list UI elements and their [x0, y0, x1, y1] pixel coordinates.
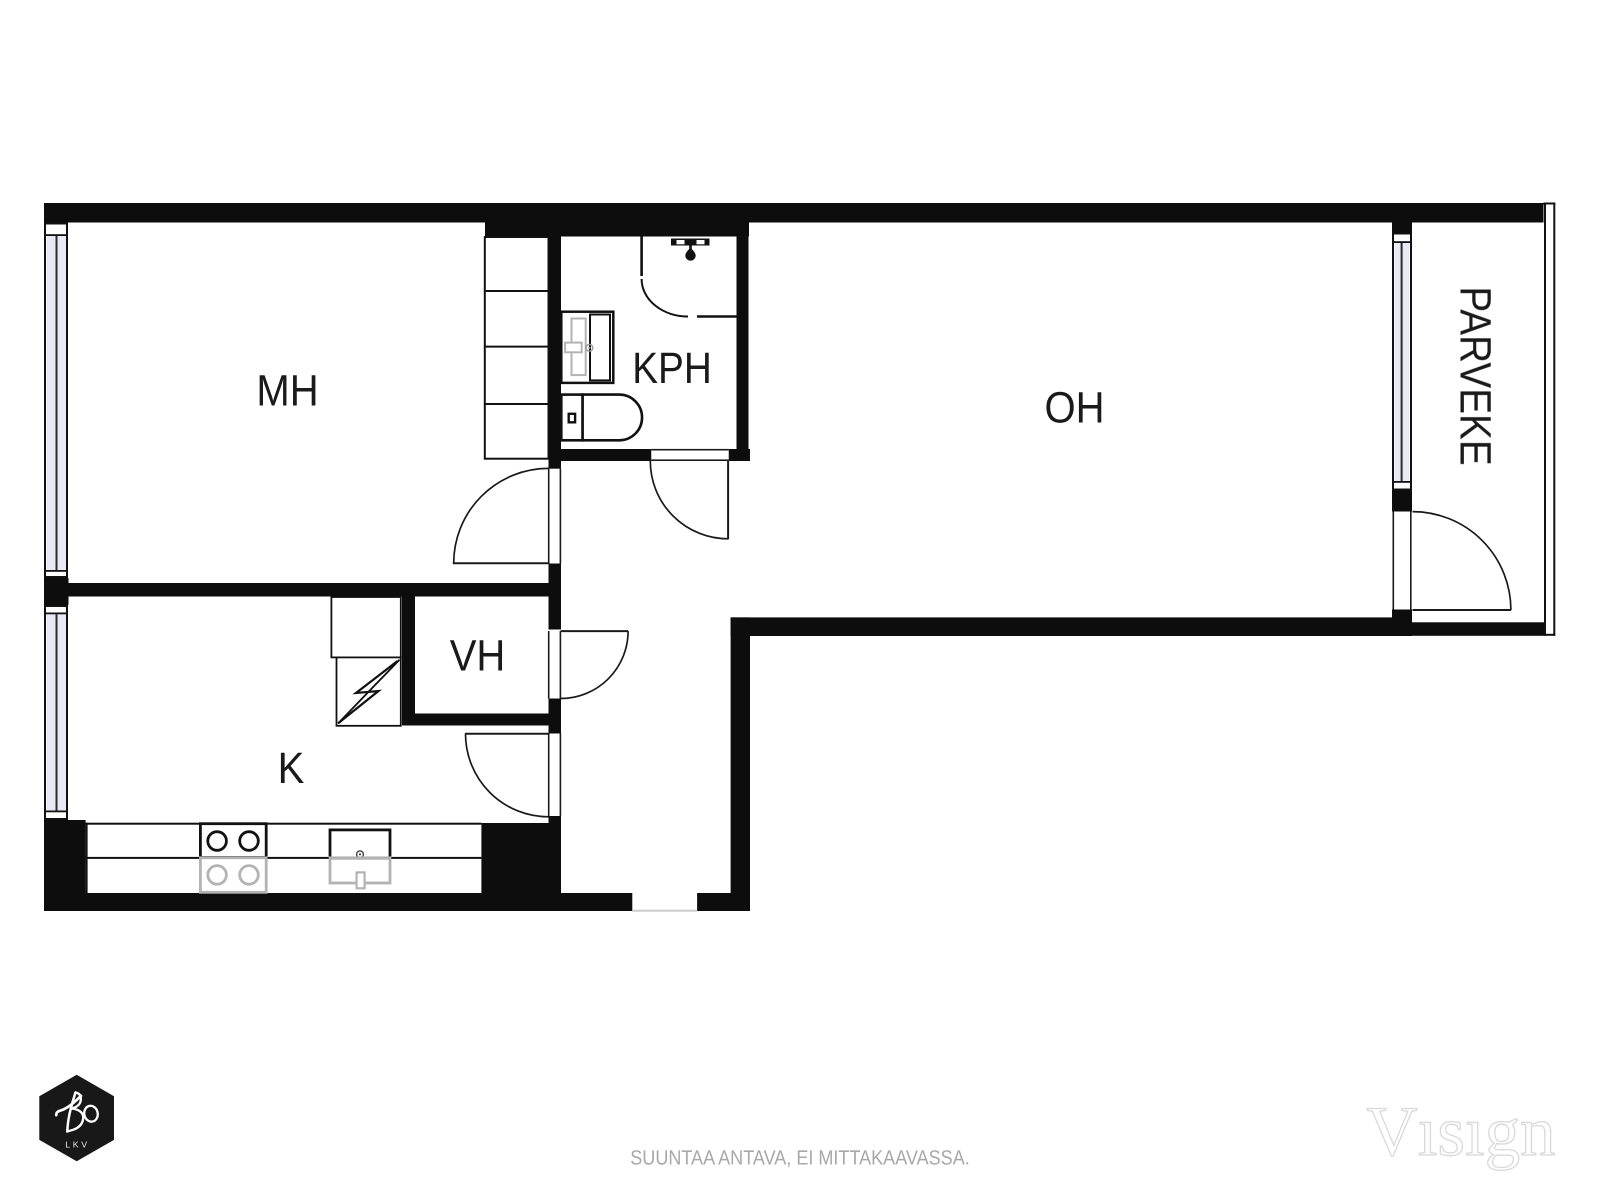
svg-text:SUUNTAA ANTAVA, EI MITTAKAAVAS: SUUNTAA ANTAVA, EI MITTAKAAVASSA. — [630, 1147, 970, 1170]
svg-text:MH: MH — [256, 366, 318, 415]
svg-text:K: K — [278, 744, 305, 793]
svg-text:PARVEKE: PARVEKE — [1451, 286, 1500, 465]
svg-text:OH: OH — [1044, 384, 1104, 433]
svg-text:KPH: KPH — [632, 344, 712, 393]
svg-text:VH: VH — [450, 631, 506, 680]
svg-text:LKV: LKV — [65, 1140, 89, 1150]
svg-text:Vısıgn: Vısıgn — [1366, 1093, 1555, 1171]
